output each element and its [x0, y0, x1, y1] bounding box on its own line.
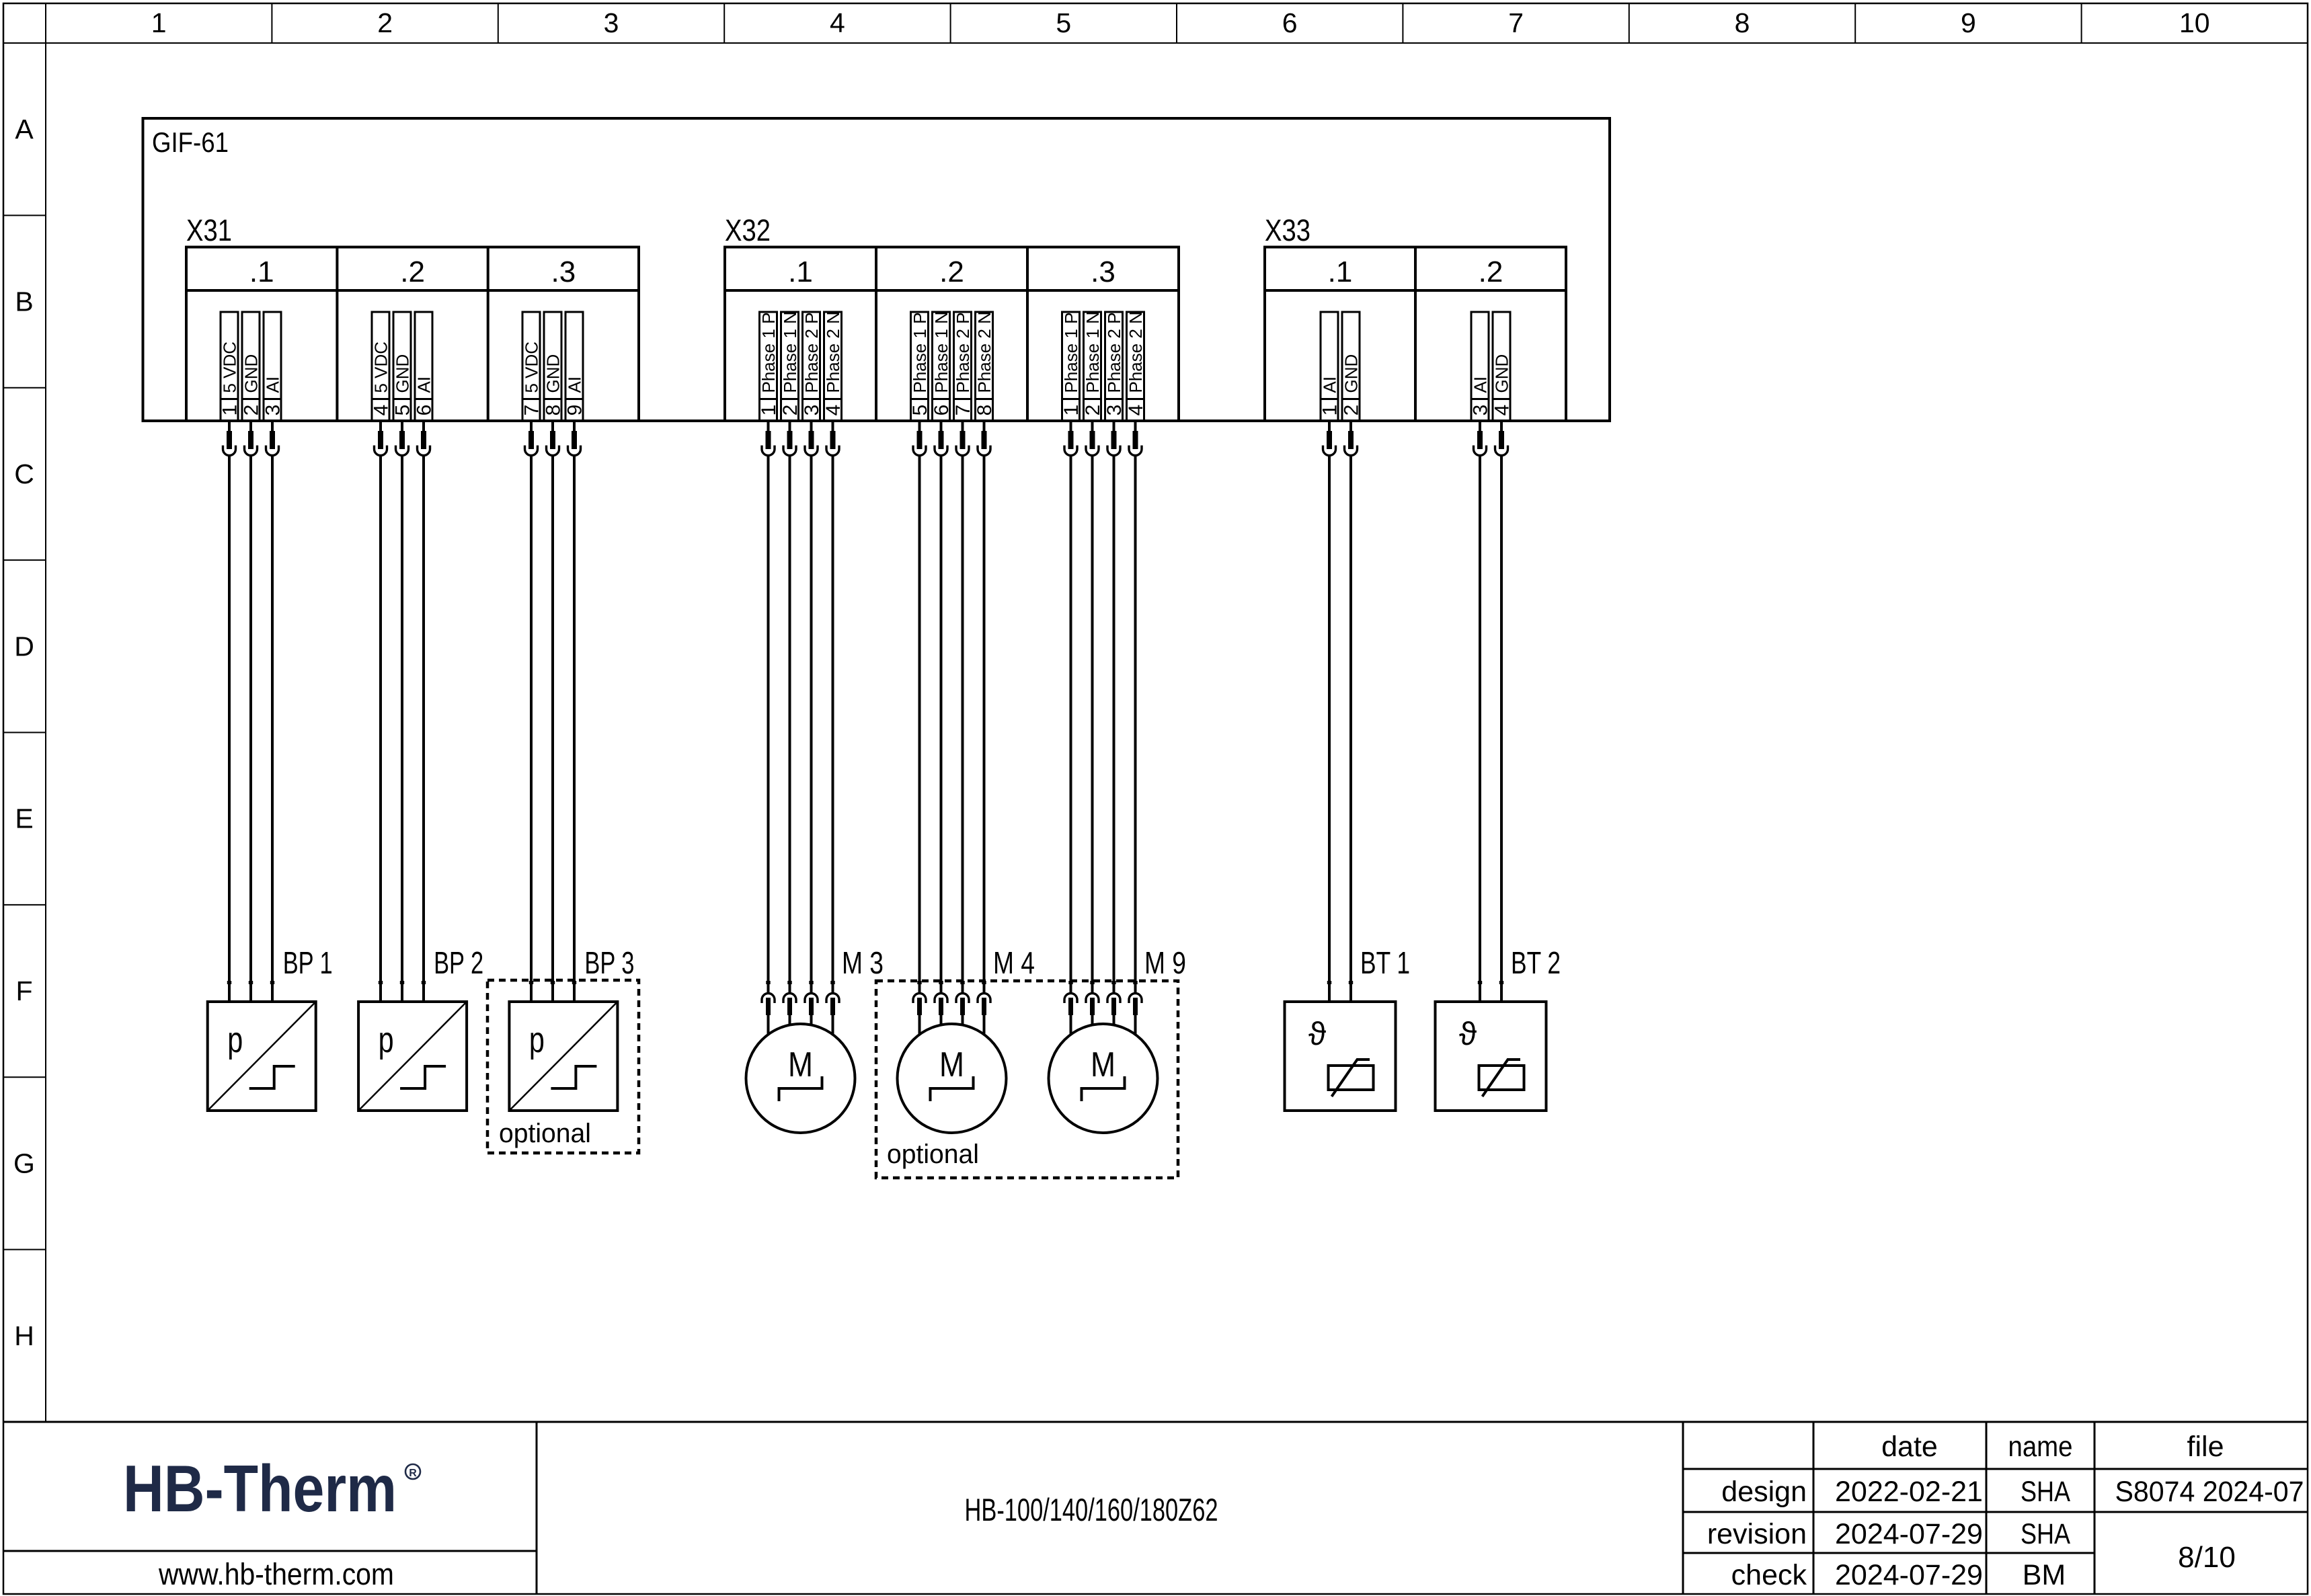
svg-text:AI: AI — [1471, 376, 1491, 393]
svg-text:4: 4 — [1125, 405, 1147, 416]
svg-text:5: 5 — [909, 405, 931, 416]
svg-text:2024-07-29: 2024-07-29 — [1835, 1559, 1983, 1591]
svg-text:ϑ: ϑ — [1459, 1016, 1477, 1052]
svg-text:Phase 1 N: Phase 1 N — [931, 311, 951, 393]
svg-text:M 3: M 3 — [842, 945, 884, 980]
svg-text:SHA: SHA — [2021, 1518, 2070, 1550]
svg-text:GND: GND — [543, 354, 563, 393]
svg-text:Phase 1 P: Phase 1 P — [758, 313, 779, 393]
svg-text:7: 7 — [952, 405, 974, 416]
svg-text:Phase 2 P: Phase 2 P — [953, 313, 973, 393]
svg-text:B: B — [15, 286, 33, 317]
svg-text:.3: .3 — [1091, 255, 1115, 288]
svg-text:6: 6 — [1282, 7, 1298, 38]
svg-text:AI: AI — [565, 376, 585, 393]
svg-text:S8074 2024-07: S8074 2024-07 — [2115, 1476, 2304, 1508]
svg-text:R: R — [409, 1468, 417, 1479]
svg-text:.2: .2 — [400, 255, 425, 288]
svg-text:5 VDC: 5 VDC — [220, 342, 240, 393]
svg-text:name: name — [2008, 1431, 2073, 1463]
svg-text:M 4: M 4 — [993, 945, 1035, 980]
svg-text:BP 3: BP 3 — [584, 945, 634, 980]
svg-text:C: C — [14, 458, 34, 489]
svg-text:GND: GND — [393, 354, 413, 393]
svg-text:date: date — [1881, 1431, 1938, 1463]
svg-text:1: 1 — [151, 7, 167, 38]
svg-text:5 VDC: 5 VDC — [522, 342, 542, 393]
svg-text:check: check — [1731, 1559, 1807, 1591]
svg-text:optional: optional — [499, 1119, 591, 1148]
svg-text:3: 3 — [604, 7, 619, 38]
svg-text:2022-02-21: 2022-02-21 — [1835, 1476, 1983, 1508]
svg-text:5: 5 — [392, 405, 414, 416]
svg-text:Phase 2 N: Phase 2 N — [974, 311, 994, 393]
svg-text:2: 2 — [1341, 405, 1363, 416]
svg-text:GND: GND — [241, 354, 262, 393]
svg-text:AI: AI — [1320, 376, 1340, 393]
svg-text:BT 2: BT 2 — [1511, 945, 1561, 980]
svg-text:BP 2: BP 2 — [434, 945, 483, 980]
svg-text:BT 1: BT 1 — [1360, 945, 1410, 980]
svg-text:BM: BM — [2023, 1559, 2066, 1591]
svg-text:GIF-61: GIF-61 — [152, 126, 229, 158]
svg-text:AI: AI — [414, 376, 434, 393]
svg-text:1: 1 — [1060, 405, 1083, 416]
svg-text:2024-07-29: 2024-07-29 — [1835, 1518, 1983, 1550]
svg-text:2: 2 — [377, 7, 393, 38]
svg-text:2: 2 — [1082, 405, 1104, 416]
svg-text:Phase 1 N: Phase 1 N — [1083, 311, 1103, 393]
svg-text:9: 9 — [1961, 7, 1976, 38]
svg-text:8/10: 8/10 — [2178, 1541, 2236, 1574]
svg-text:7: 7 — [1508, 7, 1524, 38]
svg-text:ϑ: ϑ — [1308, 1016, 1326, 1052]
svg-text:.1: .1 — [249, 255, 274, 288]
svg-text:4: 4 — [370, 405, 393, 416]
svg-text:www.hb-therm.com: www.hb-therm.com — [158, 1557, 394, 1591]
svg-text:2: 2 — [241, 405, 263, 416]
svg-text:M 9: M 9 — [1144, 945, 1186, 980]
svg-text:5: 5 — [1056, 7, 1071, 38]
svg-text:HB-Therm: HB-Therm — [123, 1451, 397, 1525]
svg-text:GND: GND — [1492, 354, 1512, 393]
svg-text:X31: X31 — [186, 213, 232, 247]
svg-text:6: 6 — [414, 405, 436, 416]
svg-text:M: M — [1091, 1045, 1115, 1084]
svg-text:.1: .1 — [1328, 255, 1353, 288]
svg-text:file: file — [2187, 1431, 2224, 1463]
svg-text:Phase 2 N: Phase 2 N — [823, 311, 843, 393]
svg-text:Phase 2 P: Phase 2 P — [801, 313, 822, 393]
svg-text:1: 1 — [758, 405, 780, 416]
svg-text:X33: X33 — [1265, 213, 1310, 247]
svg-text:design: design — [1721, 1476, 1807, 1508]
svg-text:p: p — [529, 1020, 545, 1060]
svg-text:AI: AI — [263, 376, 283, 393]
svg-text:1: 1 — [219, 405, 241, 416]
svg-text:4: 4 — [1491, 405, 1514, 416]
svg-text:BP 1: BP 1 — [283, 945, 333, 980]
svg-text:2: 2 — [779, 405, 801, 416]
svg-text:3: 3 — [1470, 405, 1492, 416]
svg-text:7: 7 — [521, 405, 543, 416]
svg-text:SHA: SHA — [2021, 1476, 2070, 1508]
svg-text:1: 1 — [1319, 405, 1341, 416]
svg-text:Phase 2 N: Phase 2 N — [1126, 311, 1146, 393]
svg-text:GND: GND — [1341, 354, 1362, 393]
svg-text:10: 10 — [2179, 7, 2210, 38]
svg-text:9: 9 — [564, 405, 586, 416]
svg-text:.2: .2 — [939, 255, 964, 288]
svg-text:.1: .1 — [788, 255, 813, 288]
svg-text:H: H — [14, 1320, 34, 1351]
svg-text:M: M — [788, 1045, 813, 1084]
svg-text:G: G — [13, 1148, 35, 1179]
svg-text:E: E — [15, 803, 33, 834]
svg-text:HB-100/140/160/180Z62: HB-100/140/160/180Z62 — [965, 1492, 1218, 1527]
svg-text:Phase 1 P: Phase 1 P — [910, 313, 930, 393]
svg-text:4: 4 — [830, 7, 845, 38]
svg-text:Phase 2 P: Phase 2 P — [1104, 313, 1124, 393]
svg-text:8: 8 — [1735, 7, 1750, 38]
svg-text:4: 4 — [822, 405, 845, 416]
svg-text:M: M — [939, 1045, 964, 1084]
svg-text:Phase 1 N: Phase 1 N — [780, 311, 800, 393]
svg-text:3: 3 — [262, 405, 284, 416]
svg-text:D: D — [14, 631, 34, 662]
svg-text:A: A — [15, 114, 34, 145]
svg-text:3: 3 — [1103, 405, 1126, 416]
svg-text:X32: X32 — [725, 213, 771, 247]
svg-text:3: 3 — [801, 405, 823, 416]
svg-text:F: F — [15, 975, 32, 1006]
svg-text:6: 6 — [931, 405, 953, 416]
svg-text:optional: optional — [887, 1140, 979, 1169]
svg-text:Phase 1 P: Phase 1 P — [1061, 313, 1081, 393]
svg-text:8: 8 — [543, 405, 565, 416]
svg-text:revision: revision — [1707, 1518, 1807, 1550]
svg-text:p: p — [379, 1020, 394, 1060]
svg-text:.3: .3 — [551, 255, 576, 288]
svg-text:8: 8 — [974, 405, 996, 416]
svg-text:5 VDC: 5 VDC — [371, 342, 391, 393]
svg-text:p: p — [227, 1020, 243, 1060]
svg-text:.2: .2 — [1479, 255, 1503, 288]
